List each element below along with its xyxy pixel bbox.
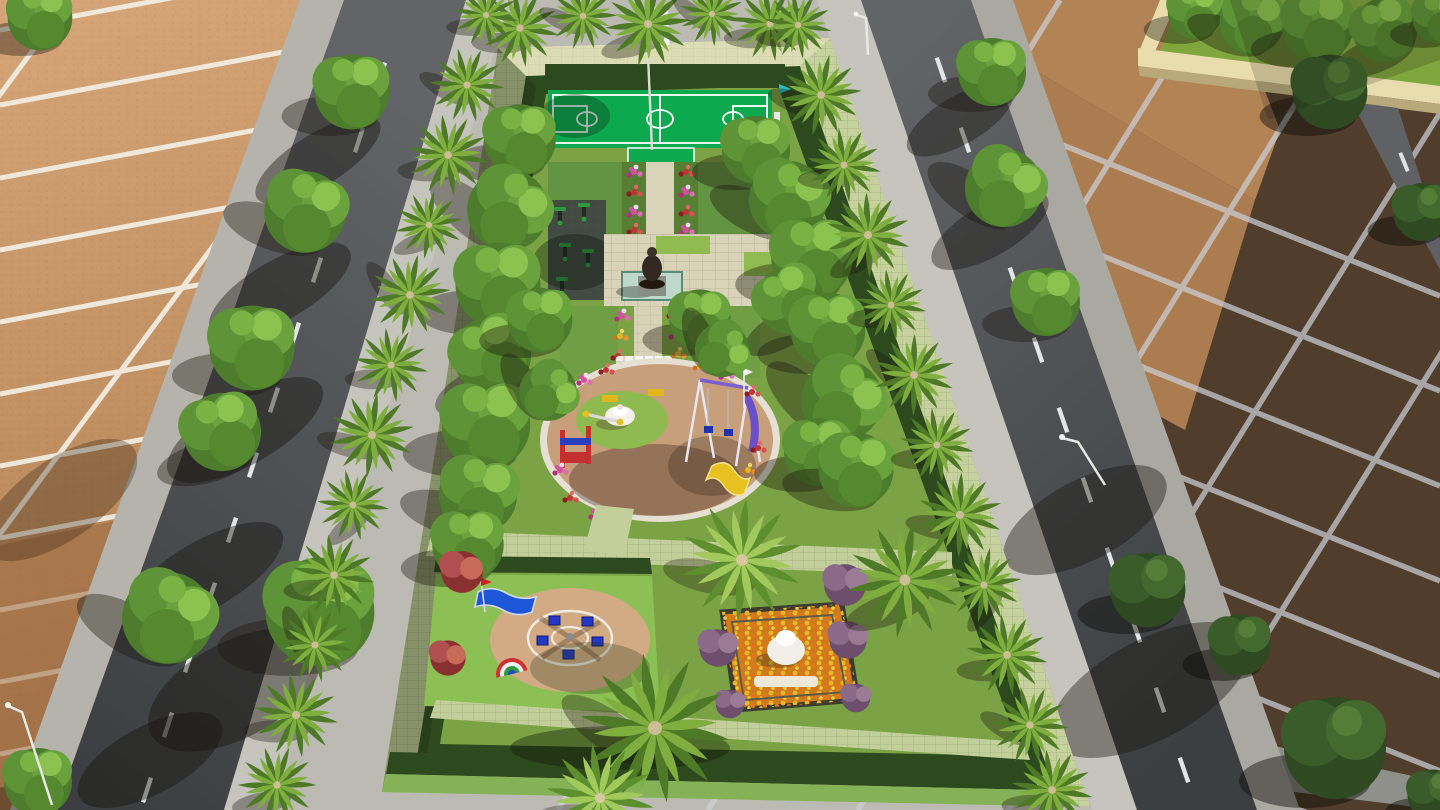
court-apron [628,148,694,163]
bench-yellow-2 [648,389,664,396]
bench-yellow-1 [602,395,618,402]
aerial-park-render [0,0,1440,810]
plaza-grass-square-1 [656,236,710,254]
render-canvas [0,0,1440,810]
court-top-hedge [545,64,785,88]
circular-playground [540,358,780,522]
bench-strip [754,676,818,687]
lawn-palm-shadow [530,642,650,694]
